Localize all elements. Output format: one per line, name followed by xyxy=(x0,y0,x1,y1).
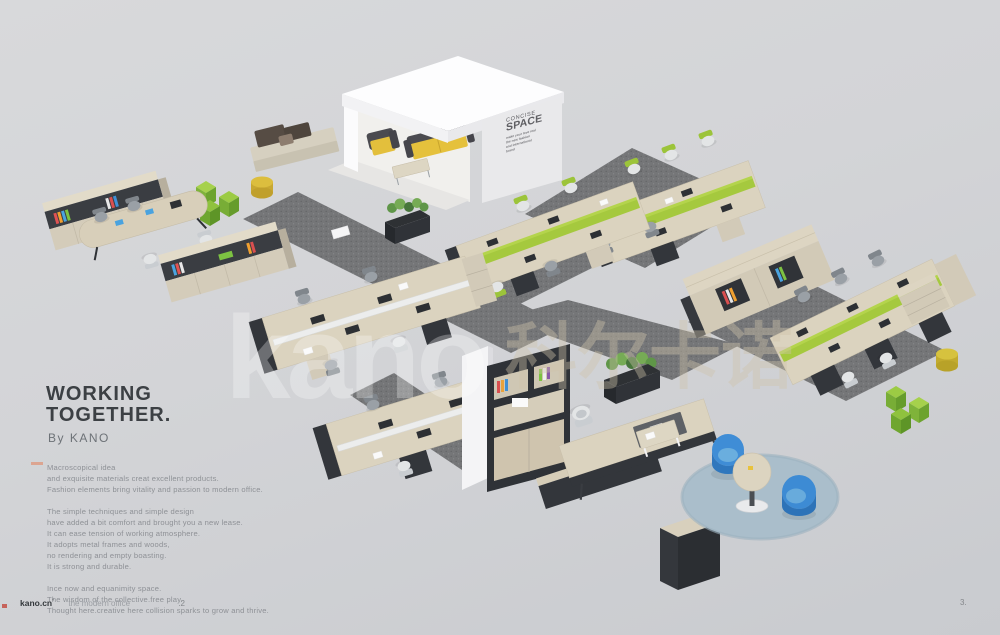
text-line: Fashion elements bring vitality and pass… xyxy=(47,484,269,495)
yellow-stool xyxy=(936,349,958,372)
headline-line-2: TOGETHER. xyxy=(46,405,171,426)
page-number-left: .2 xyxy=(178,599,185,608)
page-number-right: 3. xyxy=(960,598,967,607)
footer-trademark: ° xyxy=(52,598,54,604)
text-line: It can ease tension of working atmospher… xyxy=(47,528,269,539)
stanza-1: Macroscopical idea and exquisite materia… xyxy=(47,462,269,495)
office-chair xyxy=(866,249,887,270)
office-chair xyxy=(697,129,718,150)
reception-room: CONCISE SPACE make your love real the ne… xyxy=(328,56,564,210)
text-line: have added a bit comfort and brought you… xyxy=(47,517,269,528)
footer: kano.cn° the modern office .2 xyxy=(20,598,185,608)
round-side-table xyxy=(733,453,771,513)
text-line: Ince now and equanimity space. xyxy=(47,583,269,594)
green-ottomans-right xyxy=(886,386,929,434)
text-line: It is strong and durable. xyxy=(47,561,269,572)
office-chair xyxy=(829,267,850,288)
watermark-cjk: 科尔卡诺 xyxy=(505,318,793,398)
executive-chair xyxy=(568,402,595,429)
text-line: Macroscopical idea xyxy=(47,462,269,473)
headline-line-1: WORKING xyxy=(46,384,171,405)
lounge-area xyxy=(682,434,838,539)
planter-box xyxy=(385,198,430,244)
accent-mark xyxy=(31,462,43,465)
byline: By KANO xyxy=(48,431,110,445)
storage-cabinet-row-2 xyxy=(158,219,296,302)
watermark-latin: kano xyxy=(225,292,484,424)
catalog-page: { "document": { "headline_line1": "WORKI… xyxy=(0,0,1000,635)
print-mark xyxy=(2,604,7,608)
footer-tagline: the modern office xyxy=(68,599,130,608)
text-line: It adopts metal frames and woods, xyxy=(47,539,269,550)
yellow-pouf xyxy=(251,177,273,199)
office-chair xyxy=(660,143,681,164)
lounge-bench xyxy=(246,112,339,172)
text-line: no rendering and empty boasting. xyxy=(47,550,269,561)
text-line: and exquisite materials creat excellent … xyxy=(47,473,269,484)
text-line: The simple techniques and simple design xyxy=(47,506,269,517)
blue-tub-chair xyxy=(782,475,816,520)
footer-brand: kano.cn xyxy=(20,598,52,608)
table-decor xyxy=(748,466,753,470)
stanza-2: The simple techniques and simple design … xyxy=(47,506,269,572)
page-title: WORKING TOGETHER. xyxy=(46,384,171,426)
office-chair xyxy=(141,251,161,270)
